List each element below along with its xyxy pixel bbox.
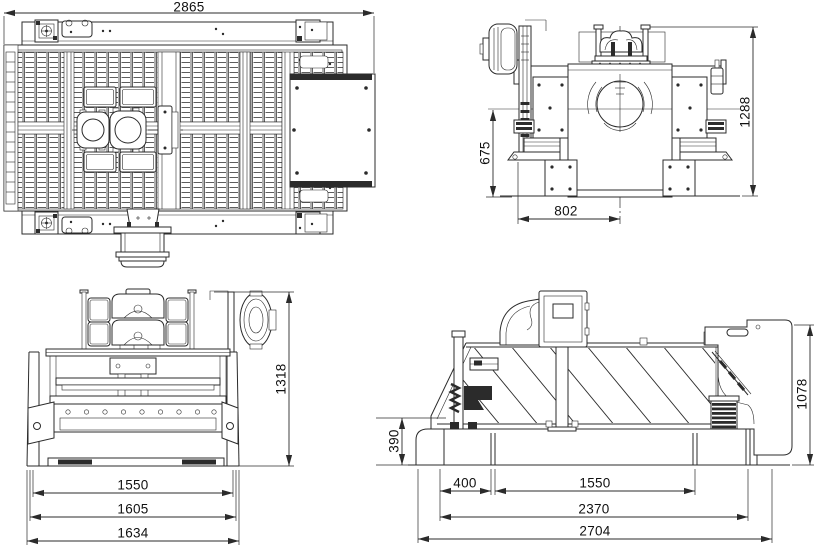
- top-view-drawing: [4, 13, 375, 267]
- dim-label-end-deck-height: 675: [478, 141, 493, 164]
- dim-label-front-width-inner: 1550: [117, 478, 148, 493]
- top-view-feed-box: [290, 56, 375, 202]
- front-view-drawing: [27, 289, 294, 545]
- dim-label-top-overall-length: 2865: [173, 0, 204, 15]
- side-view-skid: [408, 429, 790, 465]
- end-view-right-suspension: [663, 60, 732, 196]
- technical-drawing-canvas: 2865 1288 675 802 1318 1550 1605 1634 39…: [0, 0, 816, 547]
- end-view-top-bracket: [579, 25, 665, 66]
- top-view-left-channel: [4, 45, 18, 211]
- front-view-body: [28, 349, 238, 444]
- end-view-drawing: [480, 20, 758, 224]
- dim-label-front-overall-height: 1318: [274, 363, 289, 394]
- dim-label-side-feed-offset: 400: [453, 476, 476, 491]
- machine-four-view-drawing: [0, 0, 816, 547]
- dim-label-side-support-span: 1550: [579, 476, 610, 491]
- dim-label-front-width-outer: 1634: [117, 526, 148, 541]
- dim-label-front-width-mid: 1605: [117, 502, 148, 517]
- dim-label-end-base-half-width: 802: [554, 204, 577, 219]
- side-view-rear-tank: [705, 320, 792, 465]
- dim-label-side-skid-length: 2370: [578, 502, 609, 517]
- dim-label-side-overall-length: 2704: [579, 524, 610, 539]
- side-view-control-box: [500, 291, 589, 431]
- dim-label-end-overall-height: 1288: [738, 96, 753, 127]
- front-view-motor-end: [210, 291, 276, 352]
- front-view-base-skid: [48, 458, 224, 466]
- dim-label-side-overall-height: 1078: [795, 378, 810, 409]
- front-view-vibrator-motors: [80, 289, 196, 350]
- dim-label-side-discharge-height: 390: [387, 429, 402, 452]
